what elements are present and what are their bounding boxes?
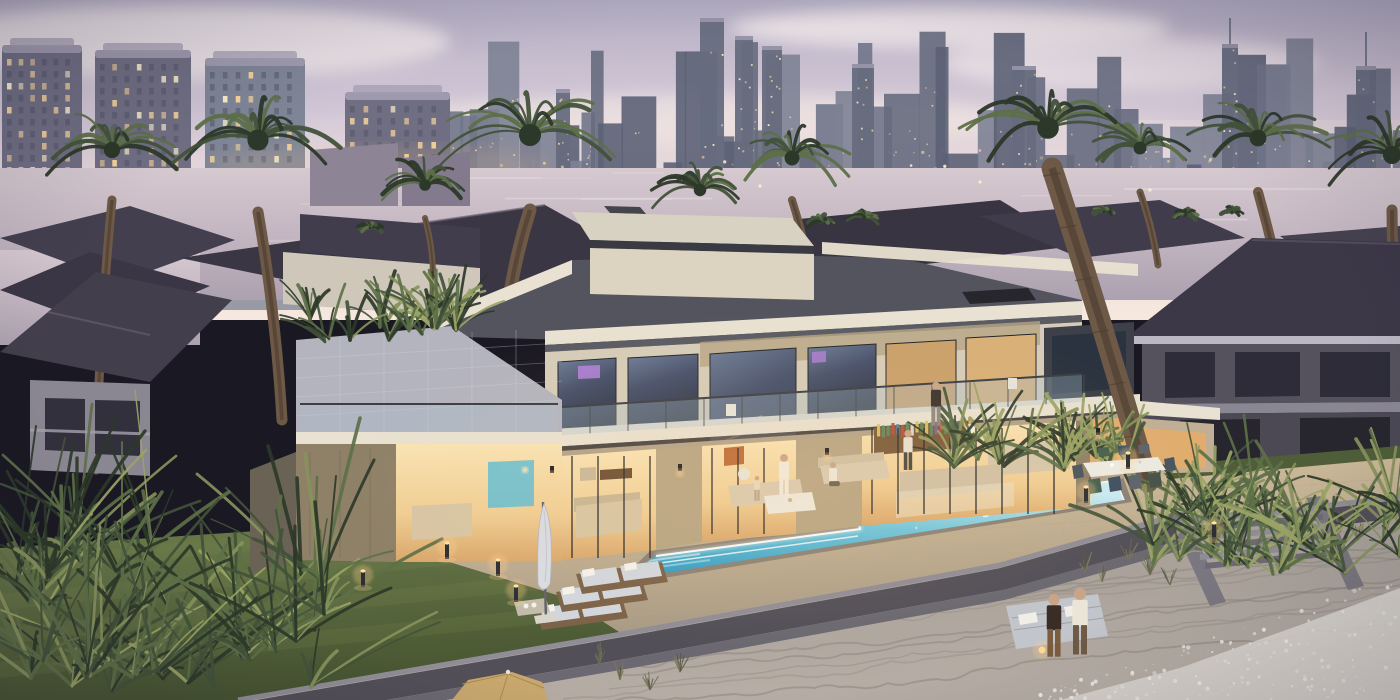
rendered-photo: Luxury beachfront villa at dusk with poo…	[0, 0, 1400, 700]
vignette	[0, 0, 1400, 700]
atmosphere	[0, 0, 1400, 700]
villa-scene: Luxury beachfront villa at dusk with poo…	[0, 0, 1400, 700]
